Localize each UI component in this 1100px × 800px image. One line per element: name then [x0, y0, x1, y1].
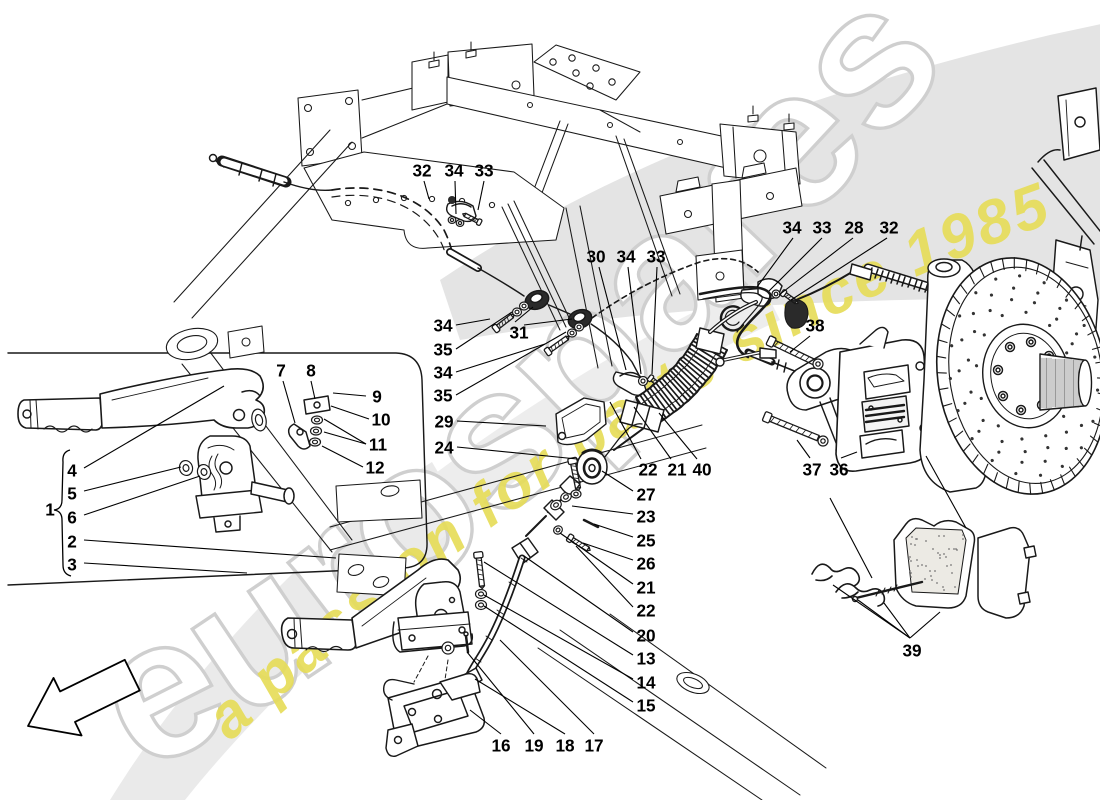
svg-text:16: 16	[491, 735, 510, 755]
svg-text:34: 34	[433, 362, 453, 382]
svg-text:34: 34	[616, 246, 636, 266]
svg-text:4: 4	[67, 460, 77, 480]
svg-text:28: 28	[844, 217, 864, 237]
svg-text:22: 22	[638, 459, 657, 479]
svg-text:21: 21	[636, 577, 656, 597]
svg-text:32: 32	[412, 160, 431, 180]
svg-text:6: 6	[67, 507, 77, 527]
svg-text:11: 11	[369, 434, 388, 454]
svg-text:3: 3	[67, 554, 77, 574]
svg-text:37: 37	[802, 459, 821, 479]
svg-text:30: 30	[586, 246, 605, 266]
svg-text:39: 39	[902, 640, 921, 660]
svg-text:27: 27	[636, 484, 655, 504]
svg-text:19: 19	[524, 735, 543, 755]
svg-text:14: 14	[636, 672, 656, 692]
svg-text:9: 9	[372, 386, 382, 406]
svg-text:32: 32	[879, 217, 898, 237]
svg-text:12: 12	[365, 457, 384, 477]
svg-text:15: 15	[636, 695, 656, 715]
svg-text:20: 20	[636, 625, 655, 645]
svg-text:34: 34	[433, 315, 453, 335]
svg-text:40: 40	[692, 459, 711, 479]
svg-text:24: 24	[434, 437, 454, 457]
svg-text:36: 36	[829, 459, 848, 479]
svg-text:31: 31	[509, 322, 529, 342]
svg-text:26: 26	[636, 553, 655, 573]
svg-text:33: 33	[812, 217, 831, 237]
svg-text:10: 10	[371, 409, 390, 429]
svg-text:35: 35	[433, 339, 453, 359]
svg-text:1: 1	[45, 499, 55, 519]
svg-text:2: 2	[67, 531, 77, 551]
svg-text:23: 23	[636, 506, 655, 526]
svg-text:34: 34	[782, 217, 802, 237]
svg-text:38: 38	[805, 315, 825, 335]
svg-text:18: 18	[555, 735, 575, 755]
svg-text:33: 33	[646, 246, 665, 266]
svg-text:33: 33	[474, 160, 493, 180]
svg-text:7: 7	[276, 360, 286, 380]
svg-text:35: 35	[433, 385, 453, 405]
svg-text:17: 17	[584, 735, 603, 755]
svg-text:13: 13	[636, 648, 655, 668]
svg-text:34: 34	[444, 160, 464, 180]
svg-text:25: 25	[636, 530, 656, 550]
svg-text:8: 8	[306, 360, 316, 380]
svg-text:21: 21	[667, 459, 687, 479]
svg-text:5: 5	[67, 483, 77, 503]
svg-text:29: 29	[434, 411, 453, 431]
svg-text:22: 22	[636, 600, 655, 620]
